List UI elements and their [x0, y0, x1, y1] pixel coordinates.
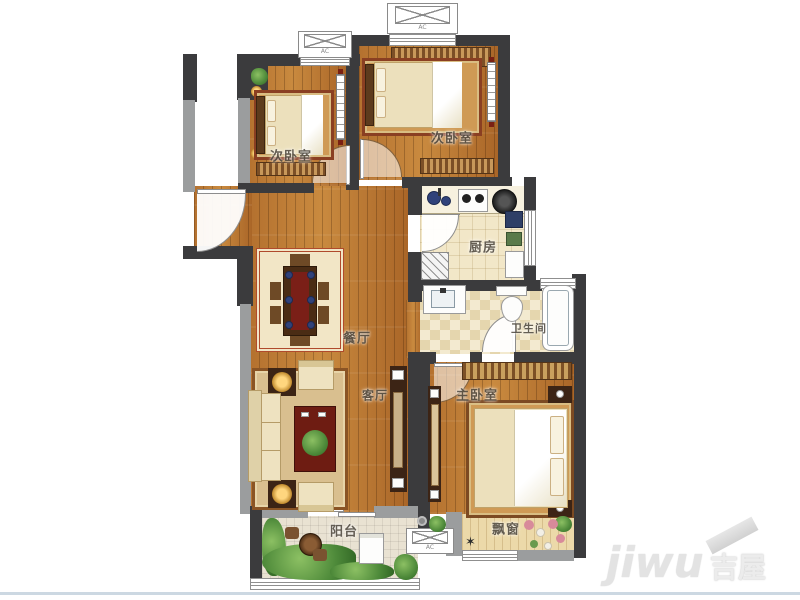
plate [285, 296, 293, 304]
flower [544, 542, 552, 550]
kitchen-door-swing [422, 215, 459, 252]
bed-headboard [365, 64, 374, 126]
faucet [440, 288, 446, 293]
wall [408, 358, 430, 516]
flower [556, 534, 565, 543]
remote [318, 412, 326, 417]
wall [374, 506, 420, 518]
sofa-back [248, 390, 262, 482]
watermark: jiwu 吉屋 [598, 534, 798, 596]
speaker [392, 478, 404, 488]
kitchen-sink [441, 196, 451, 206]
dining-chair [290, 254, 310, 266]
wall [524, 177, 536, 210]
blanket [432, 62, 462, 128]
pillow [376, 96, 386, 118]
entry-door-swing [197, 194, 246, 252]
plate [307, 271, 315, 279]
wall [574, 360, 586, 558]
room-label-bay-window: 飘窗 [492, 519, 520, 538]
flue-shaft [421, 252, 449, 280]
room-label-bedroom-right: 次卧室 [431, 128, 473, 147]
ac-platform: AC [387, 3, 458, 34]
plate [307, 321, 315, 329]
washing-machine [359, 533, 384, 564]
plant [330, 562, 394, 580]
sofa-seats [261, 393, 281, 481]
ac-platform-label: AC [426, 545, 434, 551]
dresser-handle [430, 490, 439, 499]
tv-screen [393, 392, 403, 468]
radiator [487, 62, 496, 122]
dresser [420, 158, 494, 174]
wardrobe [462, 362, 572, 380]
remote [301, 412, 309, 417]
bathtub [542, 285, 574, 351]
toilet-tank [496, 286, 527, 296]
plant [429, 516, 446, 532]
sliding-door [338, 512, 376, 517]
flower [548, 519, 558, 529]
ac-platform-symbol [395, 6, 450, 24]
dining-chair [270, 282, 281, 300]
room-label-balcony: 阳台 [330, 521, 358, 540]
armchair [298, 482, 334, 512]
plate [285, 271, 293, 279]
wall [238, 98, 250, 188]
ac-platform-label: AC [418, 25, 426, 31]
speaker [392, 370, 404, 380]
bed-headboard [256, 96, 265, 154]
ac-platform-label: AC [321, 49, 329, 55]
room-label-living: 客厅 [362, 387, 388, 404]
ac-platform-symbol [412, 531, 448, 544]
wall [408, 177, 422, 215]
floor-lamp [272, 372, 292, 392]
microwave [505, 211, 523, 228]
small-appliance [506, 232, 522, 246]
plant [251, 68, 268, 85]
plant [394, 554, 418, 580]
plate [307, 296, 315, 304]
watermark-ribbon-icon [706, 517, 759, 555]
floor-lamp [272, 484, 292, 504]
pillow [376, 68, 386, 92]
nightstand-lamp [556, 390, 564, 398]
dining-chair [318, 282, 329, 300]
wall [238, 183, 314, 193]
room-label-bedroom-left: 次卧室 [270, 146, 312, 165]
armchair [298, 360, 334, 390]
patio-chair [313, 549, 327, 561]
dining-chair [318, 306, 329, 324]
pillow [267, 100, 276, 122]
room-label-dining: 餐厅 [343, 328, 371, 347]
dresser-mirror [431, 404, 439, 486]
burner [462, 194, 471, 203]
burner [475, 194, 484, 203]
window [524, 210, 536, 266]
flower [524, 520, 534, 530]
pillow [267, 126, 276, 146]
dining-chair [270, 306, 281, 324]
room-label-master: 主卧室 [456, 385, 498, 404]
window [389, 34, 456, 46]
decor-star: ✶ [465, 536, 476, 549]
wall [498, 35, 510, 188]
wall [237, 54, 303, 66]
ac-platform: AC [406, 528, 454, 554]
radiator [336, 74, 345, 140]
window [462, 550, 518, 561]
ac-platform: AC [298, 31, 352, 58]
dresser-handle [430, 389, 439, 398]
watermark-brand-latin: jiwu [606, 542, 704, 584]
pillow [550, 458, 564, 496]
faucet [438, 188, 441, 196]
floor-plan-canvas: AC AC AC [0, 0, 800, 600]
wall [237, 246, 253, 306]
patio-chair [285, 527, 299, 539]
watermark-brand-cjk: 吉屋 [710, 554, 766, 582]
wall [518, 550, 574, 561]
flower-bouquet [302, 430, 328, 456]
room-label-bathroom: 卫生间 [511, 320, 547, 336]
gear-icon [417, 516, 427, 526]
wall [346, 35, 391, 46]
flower [530, 540, 538, 548]
room-label-kitchen: 厨房 [469, 237, 497, 256]
pillow [550, 416, 564, 454]
bedroom-right-door-swing [362, 139, 402, 177]
plate [285, 321, 293, 329]
wall [408, 252, 422, 302]
flower [536, 528, 545, 537]
wall [183, 54, 197, 102]
ac-platform-symbol [304, 34, 345, 48]
wall [183, 100, 195, 192]
bottom-divider [0, 592, 800, 595]
fridge [505, 251, 524, 278]
